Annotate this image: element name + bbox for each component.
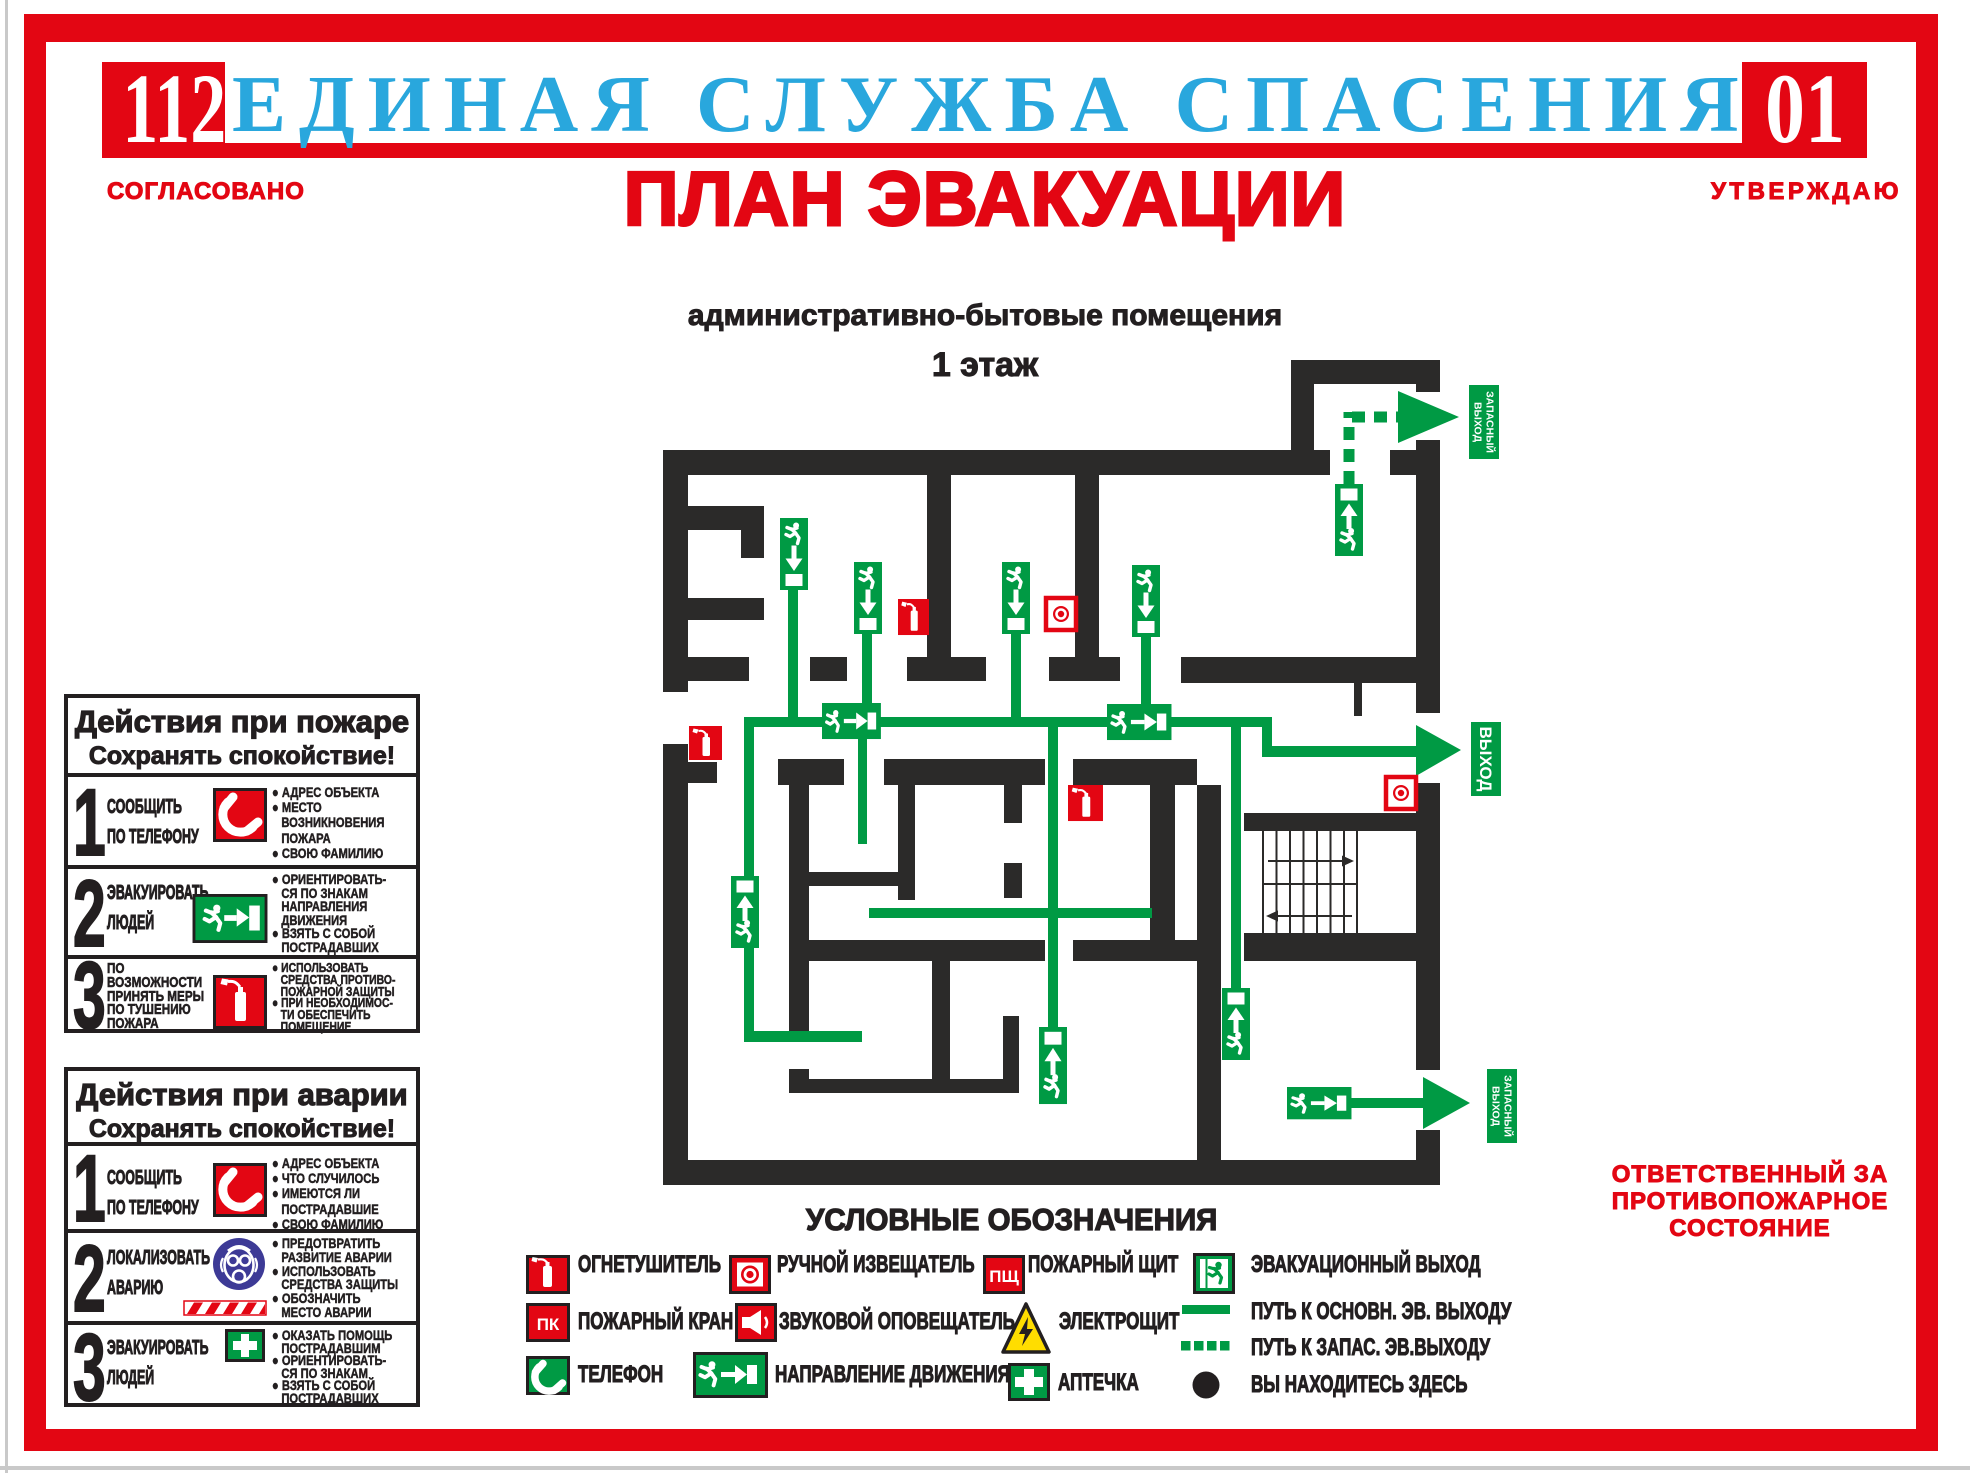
svg-text:ПК: ПК (537, 1315, 560, 1334)
svg-text:ЗАПАСНЫЙ: ЗАПАСНЫЙ (1502, 1075, 1515, 1137)
svg-text:ВЫХОД: ВЫХОД (1472, 402, 1484, 443)
svg-text:ПЩ: ПЩ (989, 1267, 1019, 1286)
svg-text:ЗАПАСНЫЙ: ЗАПАСНЫЙ (1484, 391, 1497, 453)
svg-text:ВЫХОД: ВЫХОД (1490, 1086, 1502, 1127)
svg-text:ВЫХОД: ВЫХОД (1476, 727, 1495, 792)
